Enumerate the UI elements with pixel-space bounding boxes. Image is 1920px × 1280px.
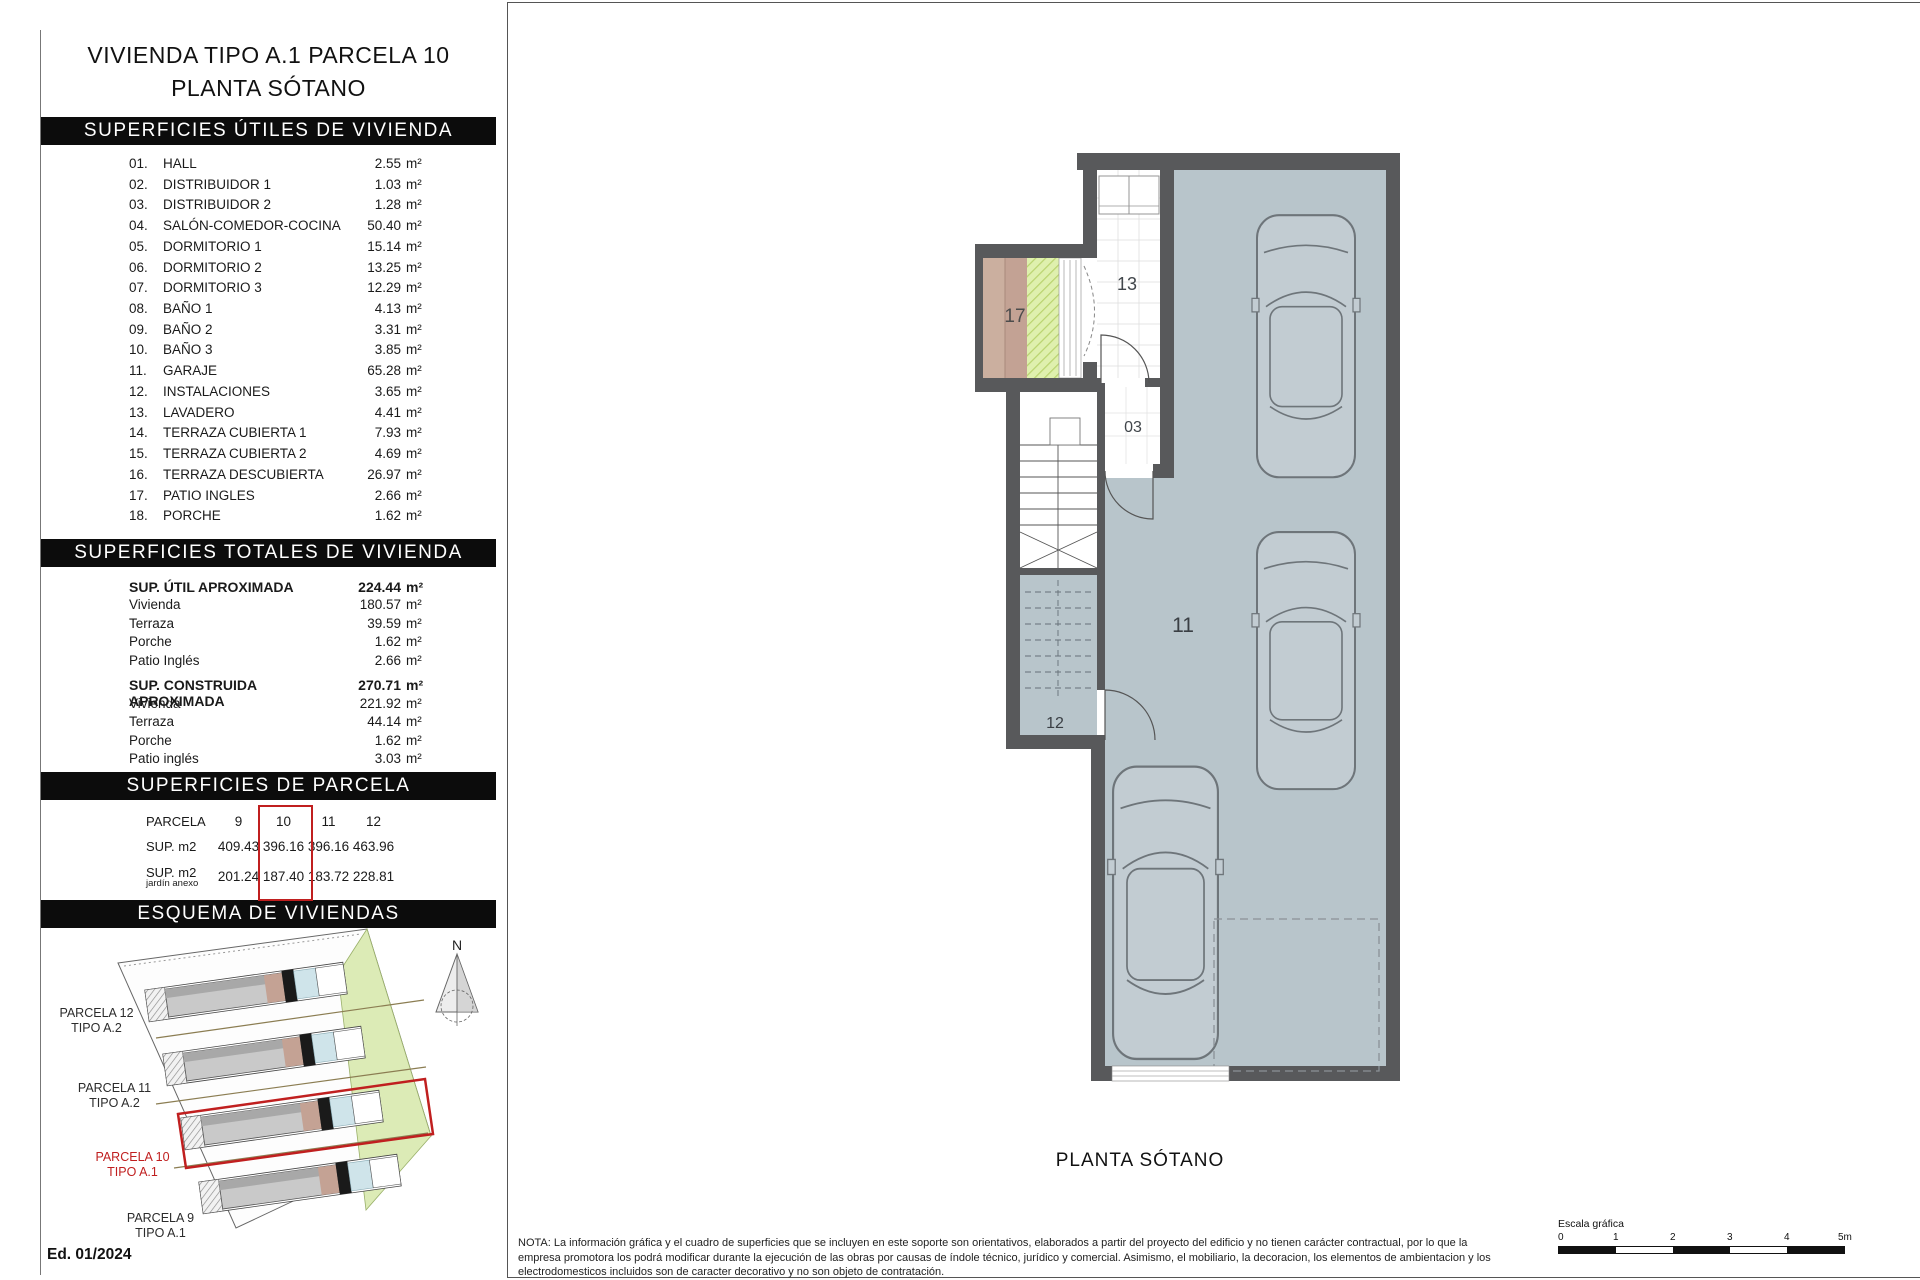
room-label-11: 11: [1172, 614, 1194, 637]
room-label-17: 17: [1004, 306, 1025, 327]
site-plan-drawing: [116, 928, 496, 1238]
table-row: SUP. m2jardín anexo 201.24 187.40 183.72…: [146, 860, 496, 894]
scale-tick: 3: [1727, 1232, 1733, 1243]
room-label-03: 03: [1124, 419, 1142, 436]
sheet-title: VIVIENDA TIPO A.1 PARCELA 10: [41, 42, 496, 69]
useful-areas-list: 01.HALL2.55m² 02.DISTRIBUIDOR 11.03m² 03…: [41, 156, 496, 529]
col-header-label: PARCELA: [146, 814, 216, 829]
note-line: NOTA: La información gráfica y el cuadro…: [518, 1236, 1548, 1251]
room-unit: m²: [401, 156, 430, 171]
sheet-divider-line: [507, 2, 508, 1278]
room-row: 01.HALL2.55m²: [129, 156, 430, 177]
room-row: 16.TERRAZA DESCUBIERTA26.97m²: [129, 467, 430, 488]
patio-hatch-zone: [1027, 258, 1059, 378]
room-label-13: 13: [1117, 274, 1137, 294]
sheet-top-border: [507, 2, 1920, 3]
scale-ticks: 0 1 2 3 4 5m: [1558, 1232, 1848, 1245]
total-group-header: SUP. CONSTRUIDA APROXIMADA270.71m²: [129, 677, 430, 696]
site-scheme: PARCELA 12TIPO A.2 PARCELA 11TIPO A.2 PA…: [41, 928, 496, 1275]
total-row: Patio inglés3.03m²: [129, 751, 430, 770]
room-row: 06.DORMITORIO 213.25m²: [129, 260, 430, 281]
room-row: 11.GARAJE65.28m²: [129, 363, 430, 384]
room-row: 05.DORMITORIO 115.14m²: [129, 239, 430, 260]
scale-tick: 1: [1613, 1232, 1619, 1243]
basement-floor-plan: 13 17 03 11 12: [955, 140, 1425, 1100]
total-row: Patio Inglés2.66m²: [129, 653, 430, 672]
total-areas-list: SUP. ÚTIL APROXIMADA224.44m² Vivienda180…: [41, 579, 496, 770]
car-icon: [1252, 215, 1360, 477]
total-row: Terraza39.59m²: [129, 616, 430, 635]
table-row: PARCELA 9 10 11 12: [146, 810, 496, 834]
total-row: Vivienda180.57m²: [129, 597, 430, 616]
section-header-plot-areas: SUPERFICIES DE PARCELA: [41, 772, 496, 800]
room-row: 07.DORMITORIO 312.29m²: [129, 280, 430, 301]
note-line: empresa promotora los podrá modificar du…: [518, 1251, 1548, 1266]
plan-sheet: { "panel": { "title_line1": "VIVIENDA TI…: [0, 0, 1920, 1280]
note-line: electrodomesticos incluidos son de carac…: [518, 1265, 1548, 1280]
table-row: SUP. m2 409.43 396.16 396.16 463.96: [146, 834, 496, 860]
room-row: 15.TERRAZA CUBIERTA 24.69m²: [129, 446, 430, 467]
info-panel: VIVIENDA TIPO A.1 PARCELA 10 PLANTA SÓTA…: [40, 30, 496, 1275]
car-icon: [1252, 532, 1360, 789]
plot-number: 9: [216, 814, 261, 829]
room-area: 2.55: [351, 156, 401, 171]
room-row: 17.PATIO INGLES2.66m²: [129, 488, 430, 509]
total-row: Terraza44.14m²: [129, 714, 430, 733]
scale-tick: 4: [1784, 1232, 1790, 1243]
car-icon: [1108, 767, 1224, 1059]
scale-tick: 0: [1558, 1232, 1564, 1243]
room-row: 12.INSTALACIONES3.65m²: [129, 384, 430, 405]
section-header-total-areas: SUPERFICIES TOTALES DE VIVIENDA: [41, 539, 496, 567]
plan-caption: PLANTA SÓTANO: [1015, 1150, 1265, 1172]
room-row: 04.SALÓN-COMEDOR-COCINA50.40m²: [129, 218, 430, 239]
total-row: Vivienda221.92m²: [129, 696, 430, 715]
room-row: 10.BAÑO 33.85m²: [129, 342, 430, 363]
scale-tick: 5m: [1838, 1232, 1852, 1243]
garden-area: 201.24: [216, 869, 261, 884]
room-row: 18.PORCHE1.62m²: [129, 508, 430, 529]
section-header-site-scheme: ESQUEMA DE VIVIENDAS: [41, 900, 496, 928]
garage-gate: [1112, 1066, 1229, 1081]
legal-note: NOTA: La información gráfica y el cuadro…: [518, 1236, 1548, 1280]
patio-tan-band: [982, 258, 1005, 378]
scale-tick: 2: [1670, 1232, 1676, 1243]
room-row: 13.LAVADERO4.41m²: [129, 405, 430, 426]
room-row: 09.BAÑO 23.31m²: [129, 322, 430, 343]
total-group-header: SUP. ÚTIL APROXIMADA224.44m²: [129, 579, 430, 598]
room-number: 01.: [129, 156, 163, 171]
total-row: Porche1.62m²: [129, 634, 430, 653]
scale-strip: [1558, 1246, 1845, 1254]
plot-area: 409.43: [216, 839, 261, 854]
highlighted-plot-column-box: [258, 805, 313, 901]
installations-room-floor: [1020, 575, 1097, 735]
plot-number: 12: [351, 814, 396, 829]
room-row: 08.BAÑO 14.13m²: [129, 301, 430, 322]
garden-area: 228.81: [351, 869, 396, 884]
graphic-scale: Escala gráfica 0 1 2 3 4 5m: [1558, 1218, 1848, 1254]
room-row: 02.DISTRIBUIDOR 11.03m²: [129, 177, 430, 198]
row-sublabel: jardín anexo: [146, 878, 216, 889]
section-header-useful-areas: SUPERFICIES ÚTILES DE VIVIENDA: [41, 117, 496, 145]
total-row: Porche1.62m²: [129, 733, 430, 752]
sheet-subtitle: PLANTA SÓTANO: [41, 75, 496, 102]
plot-area: 463.96: [351, 839, 396, 854]
plot-areas-table: PARCELA 9 10 11 12 SUP. m2 409.43 396.16…: [41, 810, 496, 894]
sliding-door-dashed-swing: [1084, 266, 1095, 356]
room-label-12: 12: [1046, 715, 1064, 732]
room-row: 14.TERRAZA CUBIERTA 17.93m²: [129, 425, 430, 446]
scale-label: Escala gráfica: [1558, 1218, 1848, 1230]
row-label: SUP. m2: [146, 839, 216, 854]
edition-label: Ed. 01/2024: [47, 1246, 131, 1264]
row-label: SUP. m2jardín anexo: [146, 865, 216, 889]
room-label: HALL: [163, 156, 351, 171]
room-row: 03.DISTRIBUIDOR 21.28m²: [129, 197, 430, 218]
